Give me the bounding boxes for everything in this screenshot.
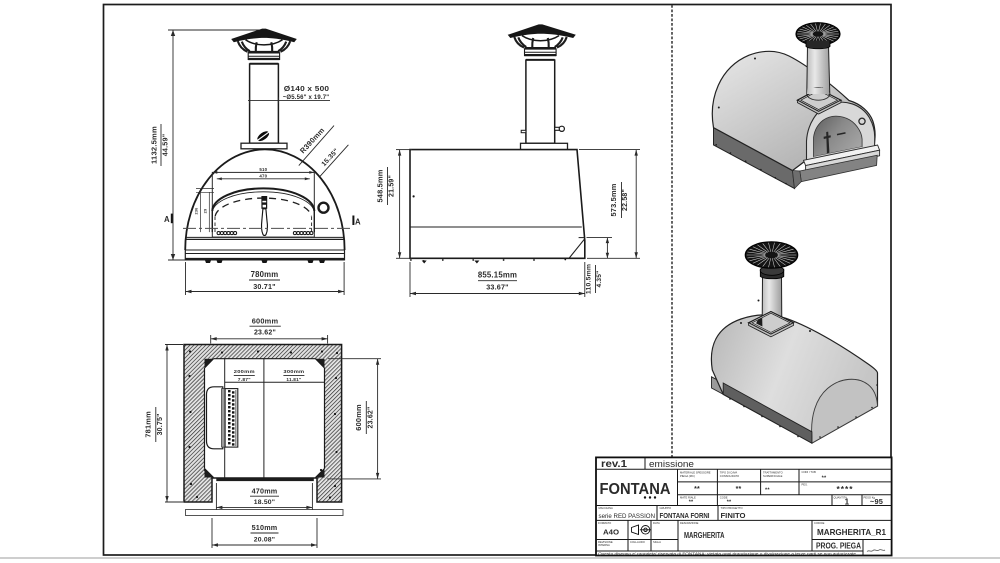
svg-text:510mm: 510mm bbox=[252, 523, 278, 532]
svg-text:300mm: 300mm bbox=[283, 369, 304, 374]
svg-text:548.5mm: 548.5mm bbox=[376, 169, 385, 202]
svg-text:**: ** bbox=[689, 499, 694, 505]
svg-text:7.87": 7.87" bbox=[238, 377, 251, 382]
svg-text:236: 236 bbox=[195, 208, 199, 215]
svg-text:****: **** bbox=[836, 484, 853, 494]
svg-text:SIGLA: SIGLA bbox=[653, 540, 661, 544]
svg-text:510: 510 bbox=[259, 167, 267, 172]
svg-text:200mm: 200mm bbox=[234, 369, 255, 374]
svg-text:FINITO: FINITO bbox=[721, 511, 746, 520]
svg-text:GRUPPO: GRUPPO bbox=[660, 506, 672, 510]
svg-text:**: ** bbox=[736, 486, 742, 493]
svg-text:PROG. PIEGA: PROG. PIEGA bbox=[816, 542, 861, 551]
svg-text:**: ** bbox=[694, 486, 700, 493]
svg-text:REVISIONE: REVISIONE bbox=[598, 540, 613, 544]
svg-text:emissione: emissione bbox=[649, 459, 694, 470]
svg-text:~95: ~95 bbox=[870, 497, 883, 506]
svg-text:A: A bbox=[355, 218, 361, 227]
svg-text:~Ø5.56" x 19.7": ~Ø5.56" x 19.7" bbox=[283, 94, 330, 101]
svg-text:CONSOLIDATO: CONSOLIDATO bbox=[720, 474, 739, 478]
svg-text:33.67": 33.67" bbox=[486, 283, 509, 292]
svg-text:4.35": 4.35" bbox=[596, 271, 603, 288]
svg-text:600mm: 600mm bbox=[354, 404, 363, 431]
svg-text:SUPERFICIALE: SUPERFICIALE bbox=[763, 474, 783, 478]
svg-text:PES.: PES. bbox=[802, 483, 808, 487]
svg-text:30.71": 30.71" bbox=[253, 282, 276, 291]
svg-text:TRATTAMENTO: TRATTAMENTO bbox=[763, 471, 783, 475]
svg-text:INTERNA: INTERNA bbox=[598, 543, 610, 547]
svg-text:MATERIALE SPESSORE: MATERIALE SPESSORE bbox=[680, 471, 711, 475]
svg-text:21.59": 21.59" bbox=[389, 175, 396, 197]
svg-text:DESCRIZIONE: DESCRIZIONE bbox=[680, 521, 699, 525]
svg-text:serie RED PASSION: serie RED PASSION bbox=[599, 513, 656, 520]
svg-text:A: A bbox=[164, 215, 170, 224]
svg-text:rev.1: rev.1 bbox=[601, 459, 627, 470]
svg-text:22.58": 22.58" bbox=[622, 189, 629, 211]
svg-text:Ø140 x 500: Ø140 x 500 bbox=[284, 84, 330, 93]
svg-text:23.62": 23.62" bbox=[368, 406, 375, 428]
svg-text:573.5mm: 573.5mm bbox=[609, 183, 618, 216]
svg-text:CODI / TUB: CODI / TUB bbox=[802, 470, 816, 474]
svg-text:30.75": 30.75" bbox=[157, 413, 164, 435]
svg-text:A4O: A4O bbox=[603, 528, 619, 537]
svg-text:23.62": 23.62" bbox=[254, 330, 276, 337]
svg-text:110.5mm: 110.5mm bbox=[586, 264, 593, 294]
svg-text:470mm: 470mm bbox=[252, 486, 278, 495]
svg-text:FONTANA: FONTANA bbox=[600, 481, 671, 498]
svg-text:Questo disegno e' proprieta' r: Questo disegno e' proprieta' riservata d… bbox=[598, 552, 856, 556]
svg-text:FORMATO: FORMATO bbox=[598, 521, 611, 525]
svg-text:FONTANA FORNI: FONTANA FORNI bbox=[660, 511, 710, 520]
svg-text:TIPO PROGETTO: TIPO PROGETTO bbox=[721, 506, 743, 510]
svg-text:1132.5mm: 1132.5mm bbox=[150, 126, 159, 164]
svg-text:TIPO DI CAVA: TIPO DI CAVA bbox=[720, 471, 738, 475]
svg-text:COLLAUDO: COLLAUDO bbox=[630, 540, 645, 544]
svg-text:780mm: 780mm bbox=[251, 270, 279, 279]
svg-text:DATA: DATA bbox=[653, 521, 660, 525]
svg-text:PIEGA (MC): PIEGA (MC) bbox=[680, 474, 695, 478]
svg-text:29: 29 bbox=[204, 209, 208, 214]
svg-text:600mm: 600mm bbox=[252, 317, 279, 326]
svg-text:855.15mm: 855.15mm bbox=[478, 271, 517, 280]
svg-text:CODICE: CODICE bbox=[814, 521, 825, 525]
svg-text:18.50": 18.50" bbox=[254, 499, 275, 506]
svg-text:20.08": 20.08" bbox=[254, 537, 275, 544]
svg-text:**: ** bbox=[765, 488, 770, 494]
svg-text:11.81": 11.81" bbox=[286, 377, 301, 382]
svg-text:**: ** bbox=[727, 499, 732, 505]
svg-text:44.59": 44.59" bbox=[161, 134, 170, 157]
svg-text:MARGHERITA_R1: MARGHERITA_R1 bbox=[817, 527, 886, 537]
svg-text:470: 470 bbox=[259, 174, 267, 179]
svg-text:781mm: 781mm bbox=[144, 411, 153, 438]
svg-text:**: ** bbox=[822, 476, 827, 482]
svg-text:1: 1 bbox=[845, 497, 850, 506]
svg-text:MARGHERITA: MARGHERITA bbox=[684, 530, 725, 540]
svg-text:MACCHINA: MACCHINA bbox=[599, 506, 614, 510]
